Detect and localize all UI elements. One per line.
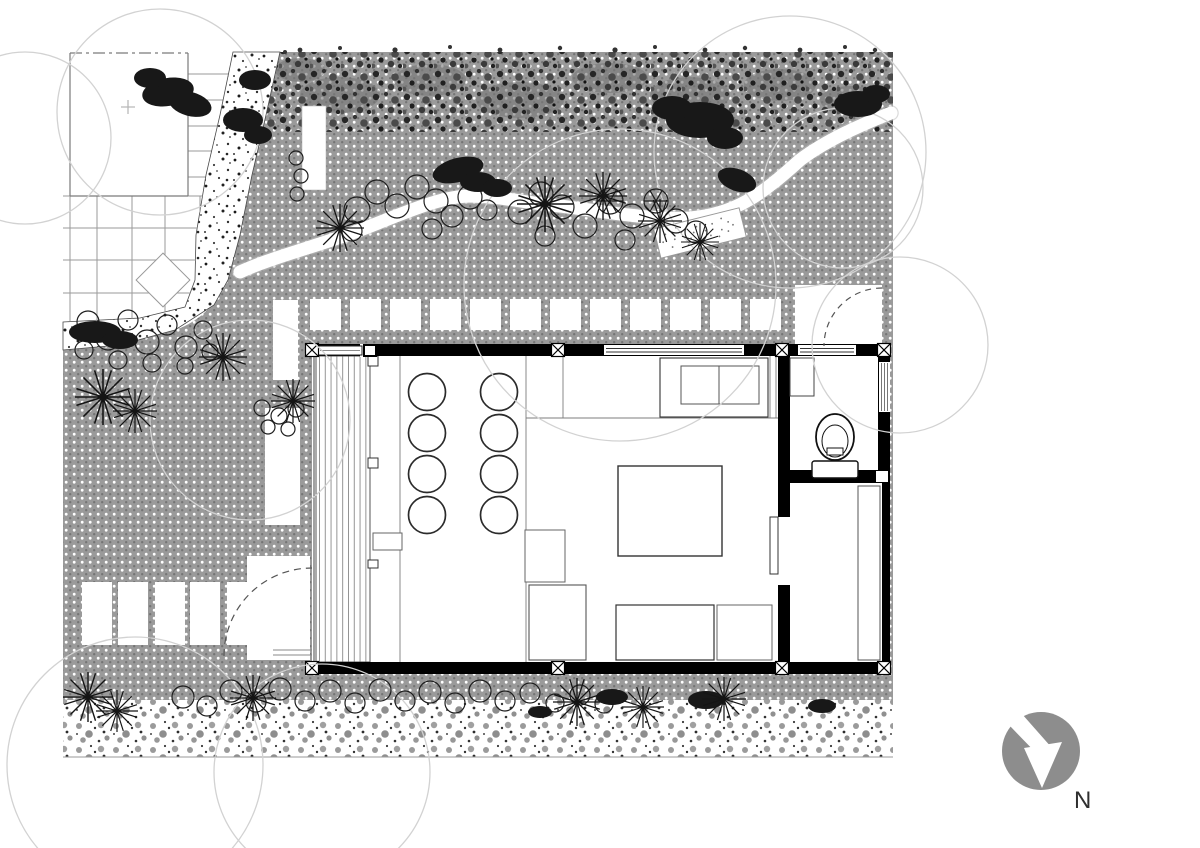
- washbasin: [790, 358, 814, 396]
- hedge-band: [252, 45, 893, 132]
- wood-deck: [316, 356, 370, 662]
- north-label: N: [1074, 787, 1091, 814]
- top-window: [604, 345, 856, 355]
- bench-seat: [717, 605, 772, 660]
- deck-post: [368, 458, 378, 468]
- closet: [858, 486, 880, 660]
- plot-center-mark: [121, 100, 135, 114]
- north-arrow-icon: [1002, 712, 1080, 790]
- low-shelf: [373, 533, 402, 550]
- diamond-paver: [136, 253, 190, 307]
- side-pavers: [82, 582, 257, 645]
- deck-post: [368, 560, 378, 568]
- sideboard: [525, 530, 565, 582]
- building: [306, 344, 891, 675]
- bench-seat: [616, 605, 714, 660]
- toilet-icon: [812, 414, 858, 478]
- door-leaf: [770, 517, 778, 574]
- site-plan-canvas: N: [0, 0, 1200, 848]
- wall-notch: [876, 471, 888, 482]
- entry-porch: [795, 285, 882, 345]
- site-plan-page: N: [0, 0, 1200, 848]
- entry-post: [364, 345, 376, 356]
- bench-seat: [529, 585, 586, 660]
- side-window: [879, 362, 890, 412]
- ground-cover-band: [63, 700, 893, 757]
- plot-outline: [70, 53, 188, 196]
- deck-post: [368, 356, 378, 366]
- garden-bench-slab: [302, 106, 326, 190]
- large-table: [618, 466, 722, 556]
